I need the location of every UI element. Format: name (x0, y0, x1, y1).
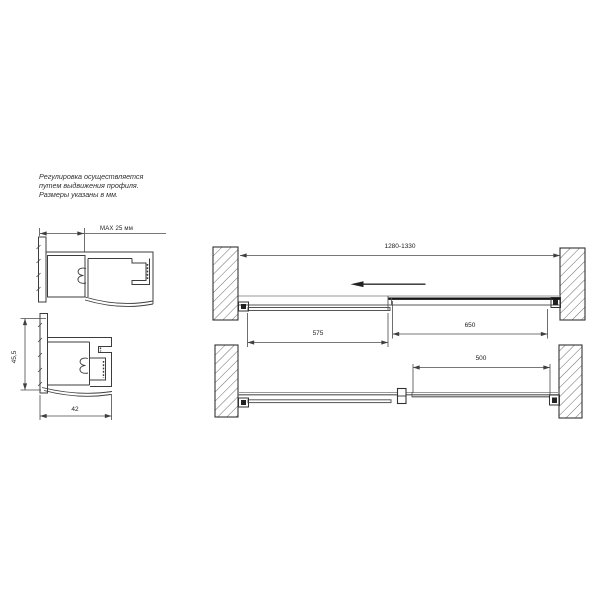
drawing-linework (0, 0, 600, 600)
sliding-panel (248, 400, 391, 403)
wall-block-left (213, 247, 238, 320)
sliding-panel-width-label: 575 (298, 331, 338, 338)
spring-clip (80, 358, 88, 373)
profile-section-nested (21, 314, 113, 421)
profile-height-label: 45,5 (12, 342, 22, 372)
wall-bracket-right (550, 395, 560, 405)
drawing-note: Регулировка осуществляется путем выдвиже… (39, 173, 143, 200)
wall-profile-strip (39, 237, 47, 302)
dimension-height-45-5 (21, 319, 47, 391)
wall-bracket-left (239, 302, 249, 311)
fixed-panel-width-label: 650 (450, 323, 490, 330)
dimension-opening (413, 364, 550, 395)
note-line-3: Размеры указаны в мм. (39, 191, 143, 200)
wall-block-right (560, 248, 585, 320)
wall-profile-strip (40, 314, 48, 394)
wall-block-left (215, 345, 238, 417)
technical-drawing-canvas: Регулировка осуществляется путем выдвиже… (0, 0, 600, 600)
opening-width-label: 500 (461, 356, 501, 363)
max-extension-label: MAX 25 мм (100, 226, 133, 232)
profile-section-extended (37, 228, 167, 306)
slide-direction-arrow (351, 281, 426, 287)
door-handle (398, 389, 407, 404)
profile-width-label: 42 (62, 407, 88, 414)
wall-bracket-left (239, 398, 249, 407)
plan-view-closed (213, 247, 585, 347)
total-width-label: 1280-1330 (356, 244, 444, 251)
plan-view-open (215, 345, 582, 418)
dimension-max-25 (40, 228, 167, 252)
wall-block-right (559, 345, 582, 418)
sliding-panel (248, 308, 390, 311)
dimension-fixed-panel (393, 301, 548, 339)
